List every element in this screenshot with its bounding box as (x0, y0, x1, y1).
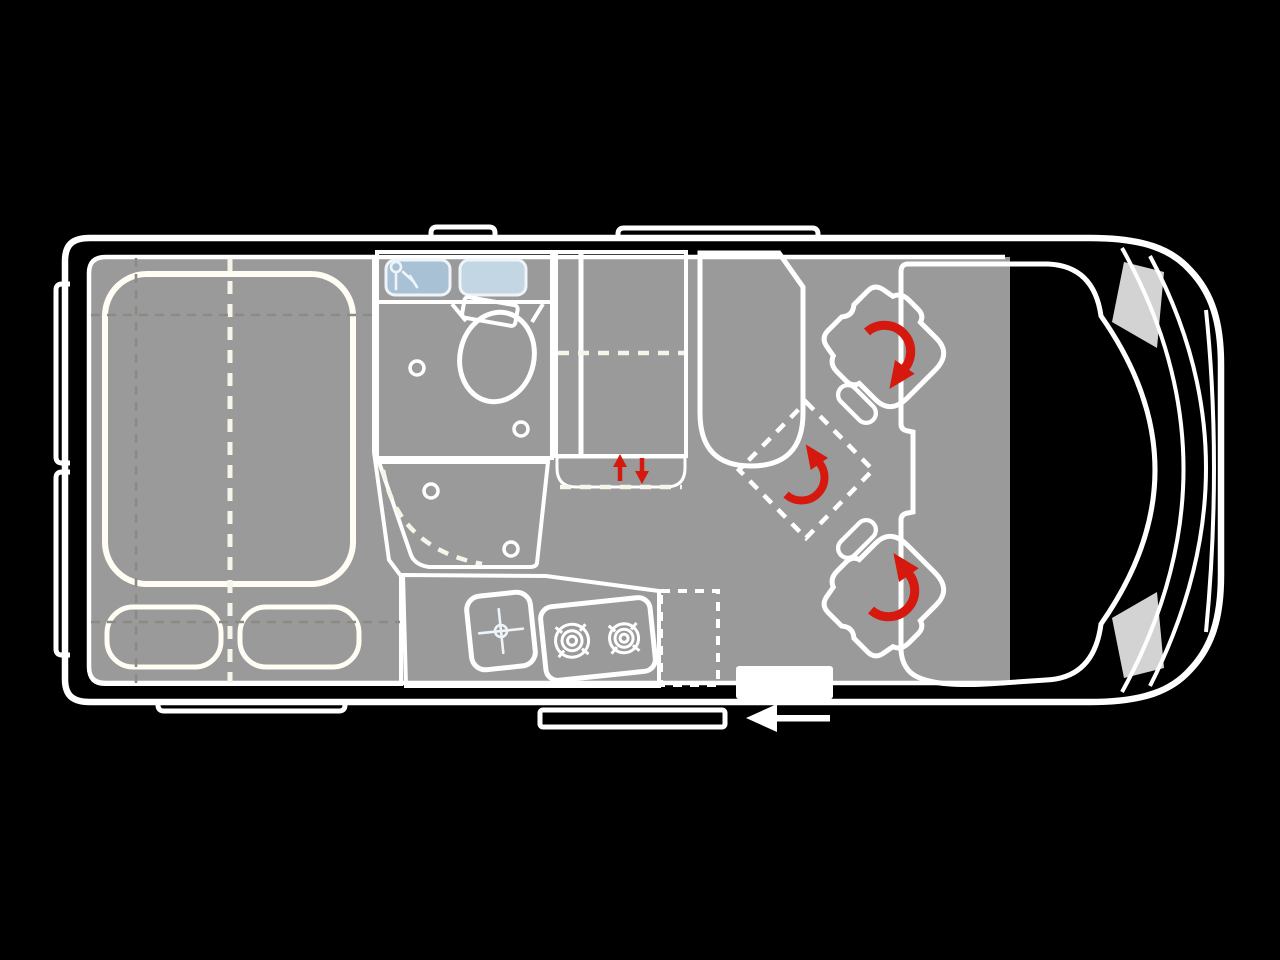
interior-floor (89, 257, 1010, 683)
entry-step (736, 666, 833, 699)
sliding-door-rail (540, 710, 725, 727)
campervan-floorplan (0, 0, 1280, 960)
bathroom-shelf (460, 260, 526, 295)
